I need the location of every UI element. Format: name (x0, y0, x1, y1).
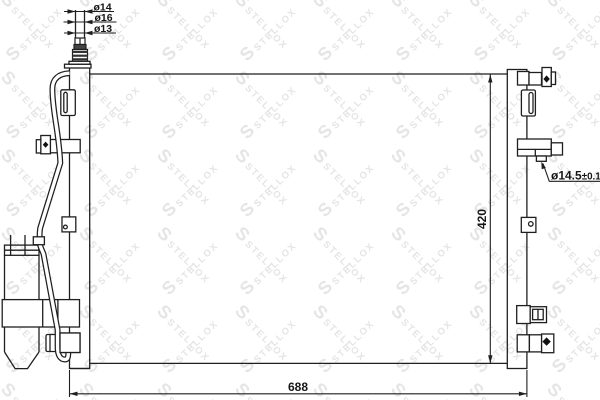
svg-text:ø13: ø13 (94, 23, 112, 35)
svg-text:420: 420 (475, 209, 489, 229)
svg-text:ø14.5±0.1: ø14.5±0.1 (551, 169, 600, 183)
svg-text:688: 688 (288, 380, 308, 394)
